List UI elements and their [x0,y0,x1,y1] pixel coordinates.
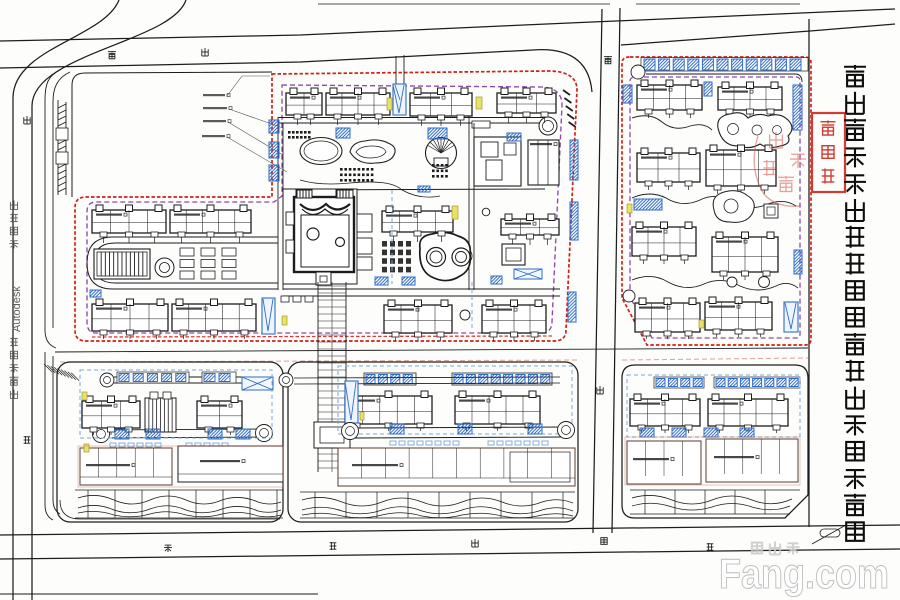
svg-text:Autodesk: Autodesk [11,286,23,332]
svg-text:Fang.com: Fang.com [719,550,889,597]
